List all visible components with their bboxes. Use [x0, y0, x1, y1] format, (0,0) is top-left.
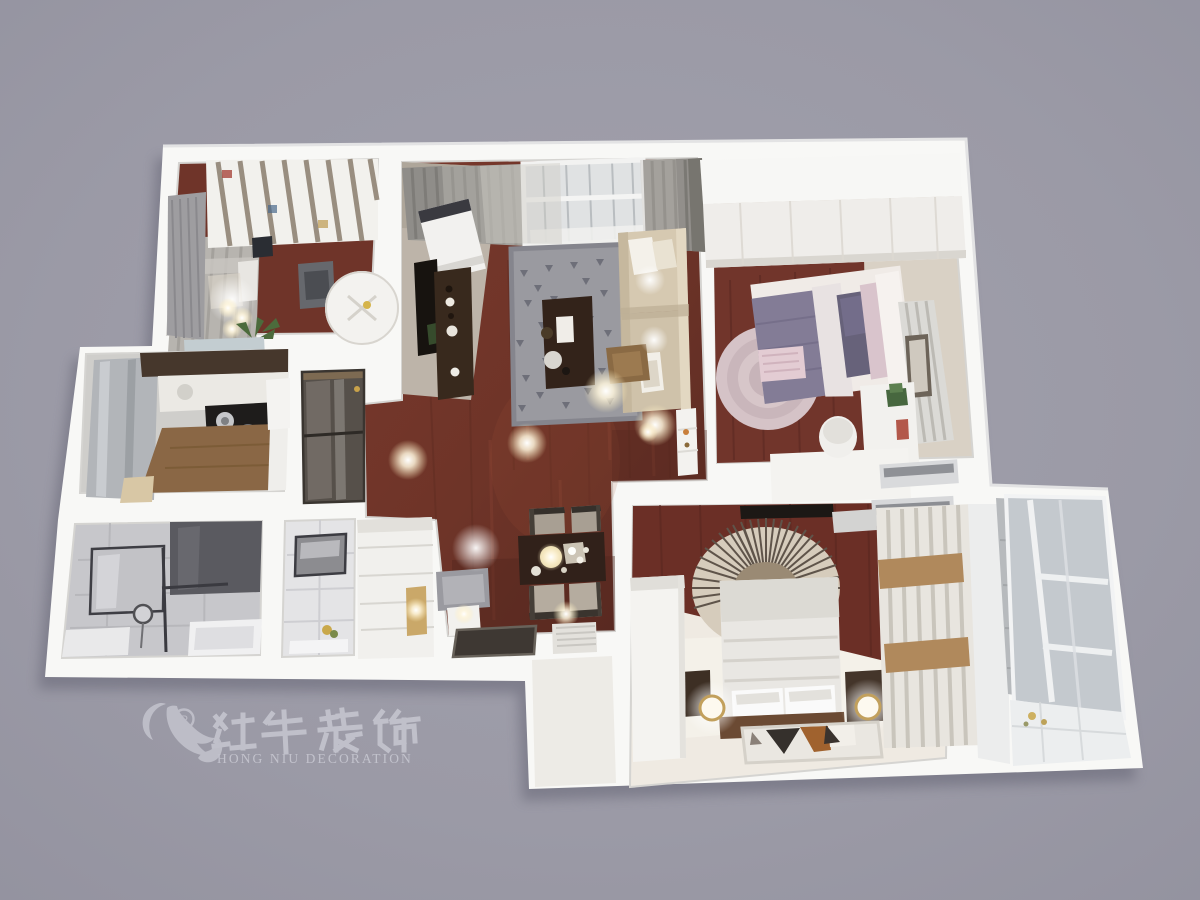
- svg-text:R: R: [180, 713, 189, 727]
- svg-text:HONG NIU DECORATION: HONG NIU DECORATION: [217, 751, 413, 766]
